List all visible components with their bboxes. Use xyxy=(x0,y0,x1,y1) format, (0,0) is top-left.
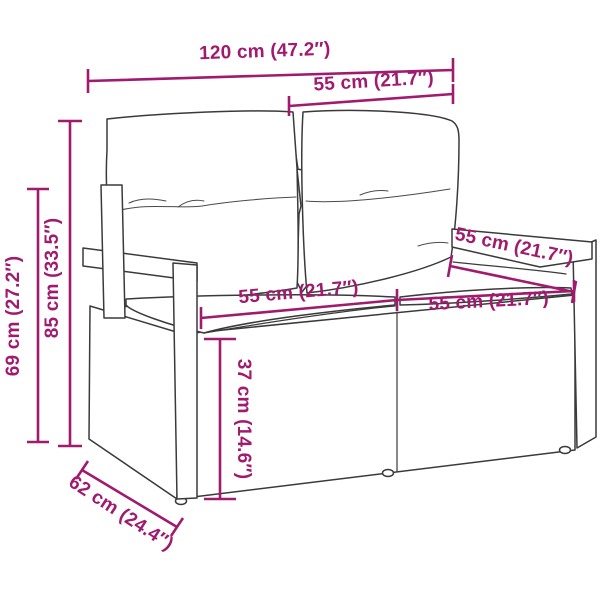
sofa-dimension-illustration: 120 cm (47.2″) 55 cm (21.7″) 85 cm (33.5… xyxy=(0,0,600,600)
left-armrest-back-post xyxy=(101,185,125,318)
dim-overall-width-label: 120 cm (47.2″) xyxy=(199,39,331,65)
base-right-side-face xyxy=(573,240,596,448)
base-left-side-face xyxy=(89,306,183,499)
sofa-foot xyxy=(383,470,394,477)
dim-overall-height-label: 85 cm (33.5″) xyxy=(42,218,63,339)
dim-backrest-width-label: 55 cm (21.7″) xyxy=(313,67,435,95)
dim-backrest-width: 55 cm (21.7″) xyxy=(289,67,453,116)
back-cushion-left xyxy=(106,111,298,307)
backrest xyxy=(106,110,459,307)
left-armrest-front-post xyxy=(173,263,197,499)
dim-seat-height-label: 37 cm (14.6″) xyxy=(233,359,254,480)
sofa-foot xyxy=(560,447,571,454)
dim-overall-height: 85 cm (33.5″) xyxy=(42,121,82,446)
dim-armrest-height-label: 69 cm (27.2″) xyxy=(3,256,24,377)
dim-armrest-depth-label: 55 cm (21.7″) xyxy=(453,224,575,270)
dimension-diagram: 120 cm (47.2″) 55 cm (21.7″) 85 cm (33.5… xyxy=(0,0,600,600)
